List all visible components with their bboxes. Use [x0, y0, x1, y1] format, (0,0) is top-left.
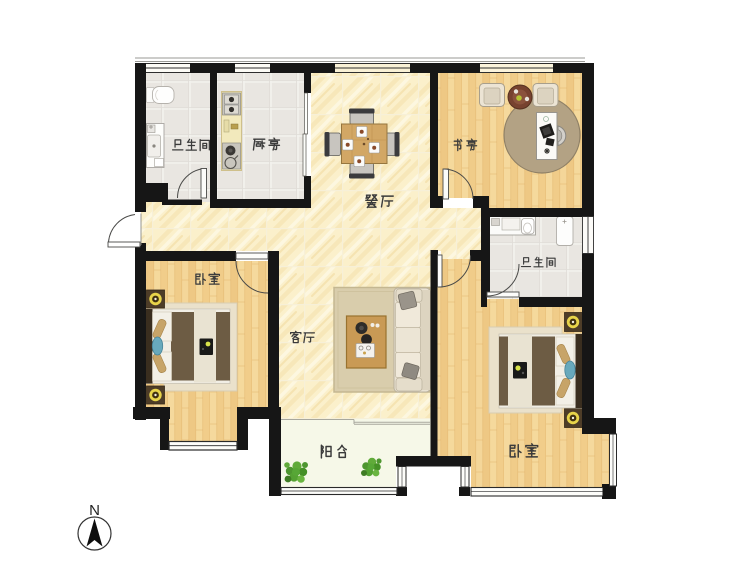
svg-text:N: N: [89, 502, 100, 519]
